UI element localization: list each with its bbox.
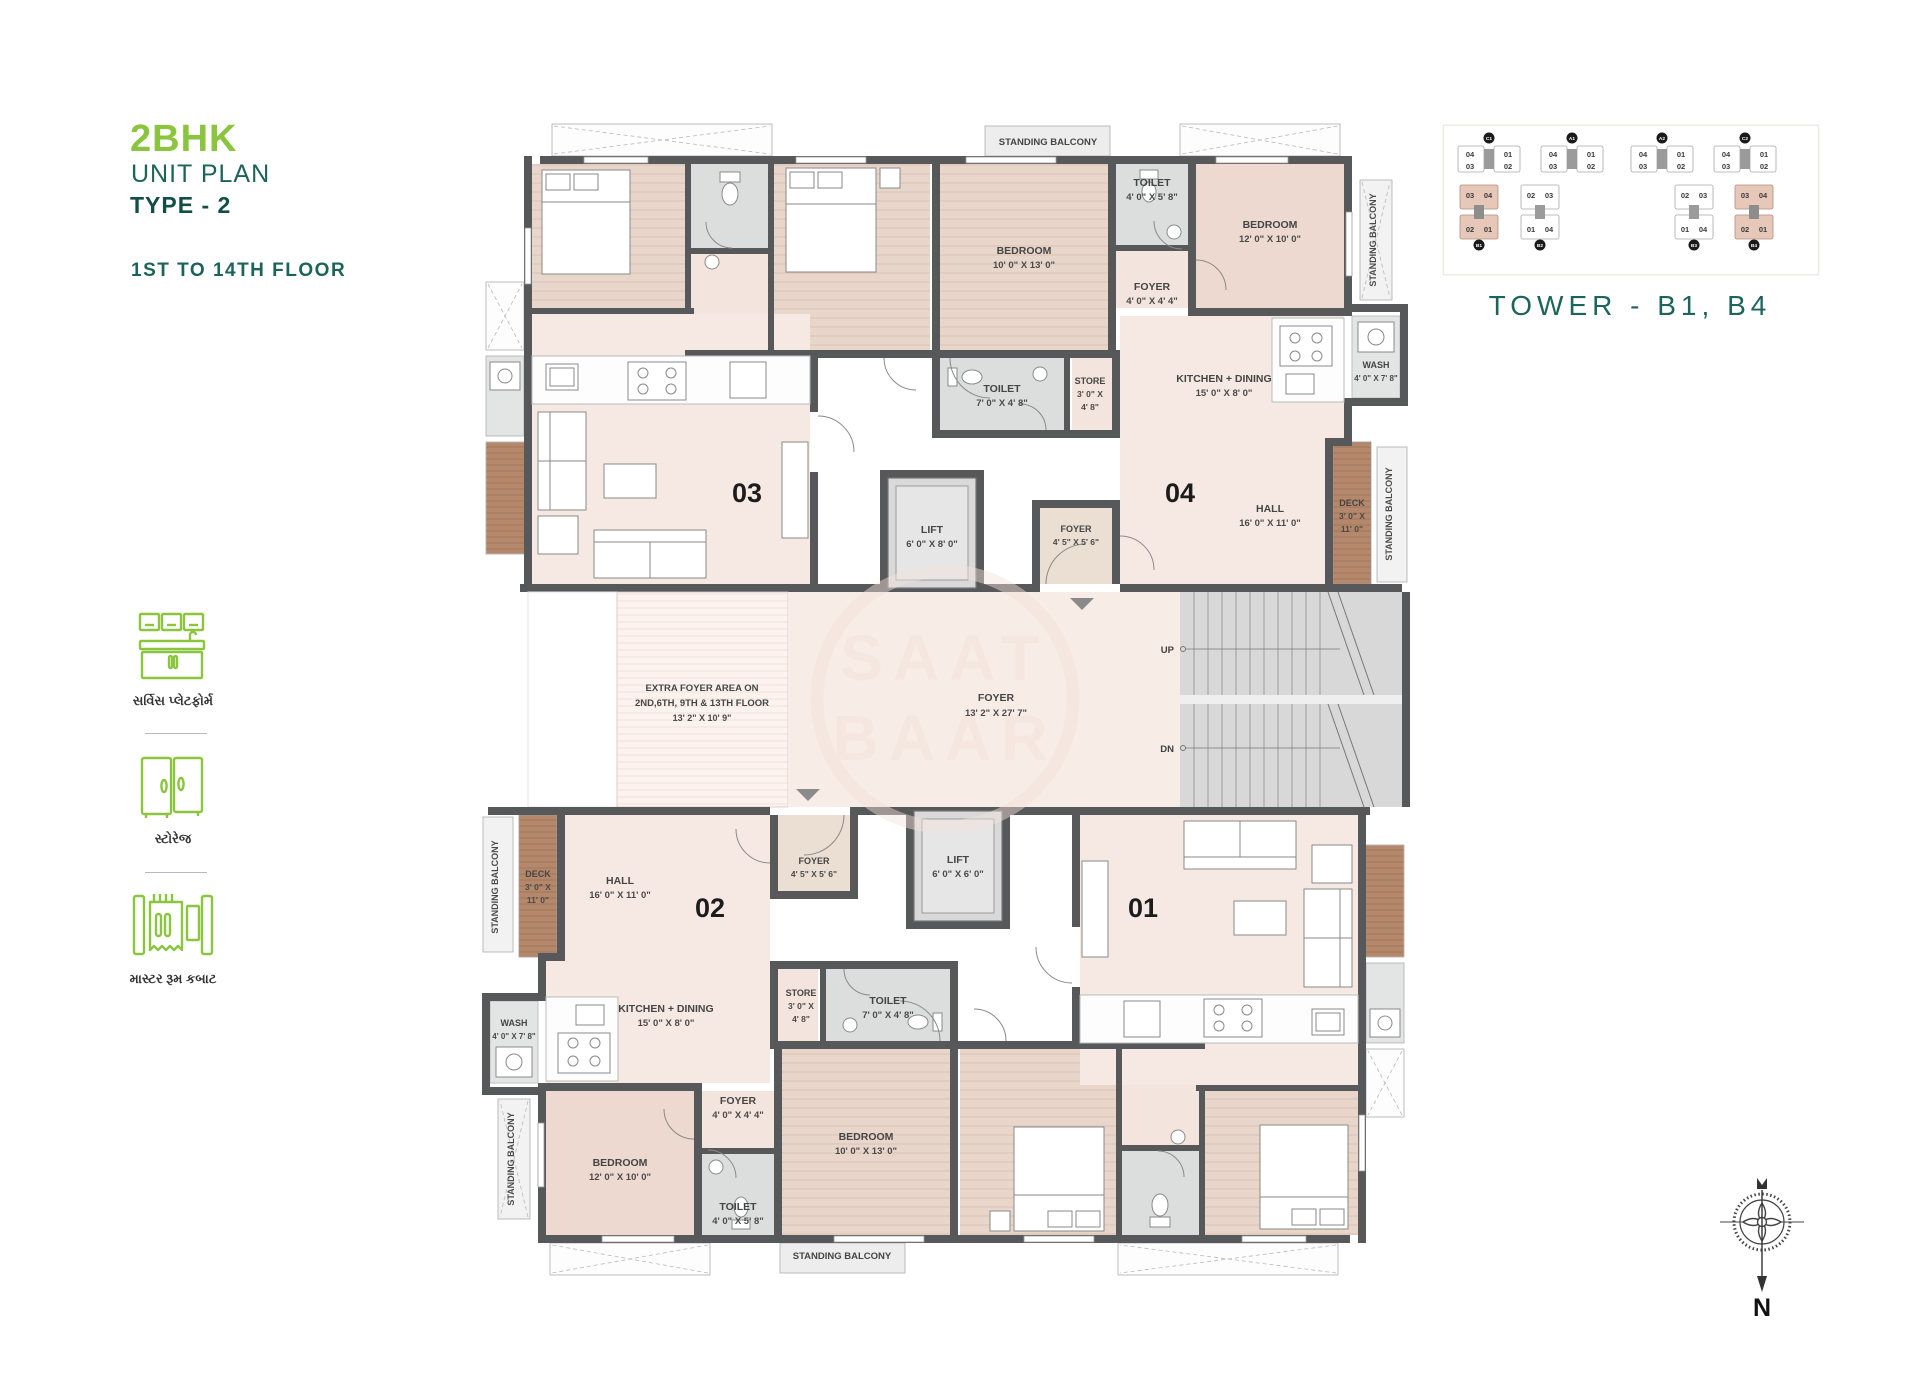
- legend-divider: [145, 733, 207, 734]
- legend-item-master-cupboard: માસ્ટર રૂમ કબાટ: [98, 892, 248, 987]
- svg-text:02: 02: [1466, 225, 1474, 234]
- svg-text:SAAT: SAAT: [840, 622, 1049, 694]
- label-standing-balcony-right-top: STANDING BALCONY: [1368, 193, 1378, 286]
- svg-text:13' 2" X 27' 7": 13' 2" X 27' 7": [965, 708, 1027, 719]
- svg-text:BEDROOM: BEDROOM: [593, 1157, 648, 1169]
- key-plan-caption: TOWER - B1, B4: [1443, 290, 1817, 322]
- svg-text:C2: C2: [1742, 136, 1748, 142]
- svg-text:3' 0" X: 3' 0" X: [1339, 511, 1365, 521]
- title-unit-plan: UNIT PLAN: [131, 160, 270, 189]
- svg-text:6' 0" X 8' 0": 6' 0" X 8' 0": [906, 539, 958, 550]
- svg-text:04: 04: [1549, 150, 1558, 159]
- key-plan-tower-B2: 0203 0104 B2: [1520, 184, 1560, 252]
- svg-text:12' 0" X 10' 0": 12' 0" X 10' 0": [1239, 234, 1301, 245]
- svg-text:HALL: HALL: [1256, 503, 1285, 515]
- label-standing-balcony-bottom: STANDING BALCONY: [793, 1251, 892, 1262]
- storage-icon: [140, 756, 206, 820]
- label-up: UP: [1161, 645, 1175, 656]
- label-dn: DN: [1160, 744, 1174, 755]
- svg-text:4' 8": 4' 8": [1081, 402, 1099, 412]
- svg-text:B1: B1: [1476, 243, 1482, 249]
- svg-text:4' 0" X 5' 8": 4' 0" X 5' 8": [712, 1216, 764, 1227]
- svg-text:WASH: WASH: [1363, 360, 1390, 370]
- svg-text:FOYER: FOYER: [1060, 524, 1092, 534]
- svg-text:10' 0" X 13' 0": 10' 0" X 13' 0": [993, 260, 1055, 271]
- title-bhk: 2BHK: [130, 118, 237, 161]
- svg-text:04: 04: [1484, 191, 1493, 200]
- svg-text:01: 01: [1504, 150, 1512, 159]
- svg-text:WASH: WASH: [501, 1018, 528, 1028]
- svg-text:TOILET: TOILET: [983, 383, 1021, 395]
- svg-text:EXTRA FOYER AREA ON: EXTRA FOYER AREA ON: [646, 683, 759, 694]
- key-plan-tower-B3: 0203 0104 B3: [1674, 184, 1714, 252]
- svg-text:B4: B4: [1751, 243, 1757, 249]
- master-cupboard-icon: [132, 892, 214, 960]
- svg-text:4' 0" X 4' 4": 4' 0" X 4' 4": [712, 1110, 764, 1121]
- svg-text:KITCHEN + DINING: KITCHEN + DINING: [1176, 373, 1271, 385]
- svg-text:13' 2" X 10' 9": 13' 2" X 10' 9": [673, 713, 732, 723]
- key-plan-tower-C1: 0401 0302 C1: [1457, 132, 1521, 176]
- svg-text:03: 03: [1466, 191, 1474, 200]
- svg-text:04: 04: [1639, 150, 1648, 159]
- svg-text:FOYER: FOYER: [978, 692, 1015, 704]
- unit-number-02: 02: [695, 893, 725, 923]
- svg-text:4' 5" X 5' 6": 4' 5" X 5' 6": [1053, 537, 1099, 547]
- svg-text:7' 0" X 4' 8": 7' 0" X 4' 8": [862, 1010, 914, 1021]
- svg-text:4' 8": 4' 8": [792, 1014, 810, 1024]
- svg-text:4' 0" X 5' 8": 4' 0" X 5' 8": [1126, 192, 1178, 203]
- key-plan-tower-A1: 0401 0302 A1: [1540, 132, 1604, 176]
- svg-text:7' 0" X 4' 8": 7' 0" X 4' 8": [976, 398, 1028, 409]
- svg-text:01: 01: [1527, 225, 1535, 234]
- svg-text:01: 01: [1681, 225, 1689, 234]
- svg-text:03: 03: [1545, 191, 1553, 200]
- svg-text:STORE: STORE: [1075, 376, 1106, 386]
- svg-text:6' 0" X 6' 0": 6' 0" X 6' 0": [932, 869, 984, 880]
- svg-text:B2: B2: [1537, 243, 1543, 249]
- title-plan-type: TYPE - 2: [130, 192, 231, 219]
- title-floor-range: 1ST TO 14TH FLOOR: [131, 260, 346, 282]
- svg-text:01: 01: [1484, 225, 1492, 234]
- svg-text:4' 5" X 5' 6": 4' 5" X 5' 6": [791, 869, 837, 879]
- svg-text:LIFT: LIFT: [921, 524, 944, 536]
- svg-text:03: 03: [1741, 191, 1749, 200]
- key-plan-box: 0401 0302 C1 0401 0302 A1 0401 0302 A2 0…: [1443, 125, 1819, 275]
- label-standing-balcony-left-top: STANDING BALCONY: [490, 840, 500, 933]
- svg-text:BEDROOM: BEDROOM: [1243, 219, 1298, 231]
- svg-text:DECK: DECK: [1339, 498, 1365, 508]
- key-plan-tower-C2: 0401 0302 C2: [1713, 132, 1777, 176]
- svg-text:TOILET: TOILET: [1133, 177, 1171, 189]
- svg-text:12' 0" X 10' 0": 12' 0" X 10' 0": [589, 1172, 651, 1183]
- svg-text:11' 0": 11' 0": [527, 895, 549, 905]
- svg-text:2ND,6TH, 9TH & 13TH FLOOR: 2ND,6TH, 9TH & 13TH FLOOR: [635, 698, 769, 709]
- svg-text:01: 01: [1677, 150, 1685, 159]
- service-platform-icon: [138, 612, 208, 682]
- svg-text:LIFT: LIFT: [947, 854, 970, 866]
- svg-text:TOILET: TOILET: [719, 1201, 757, 1213]
- label-standing-balcony-right-mid: STANDING BALCONY: [1384, 467, 1394, 560]
- svg-text:BEDROOM: BEDROOM: [997, 245, 1052, 257]
- svg-text:02: 02: [1741, 225, 1749, 234]
- svg-text:TOILET: TOILET: [869, 995, 907, 1007]
- legend-label-service-platform: સર્વિસ પ્લેટફોર્મ: [98, 693, 248, 709]
- svg-text:10' 0" X 13' 0": 10' 0" X 13' 0": [835, 1146, 897, 1157]
- staircase: [1180, 592, 1410, 807]
- svg-text:02: 02: [1681, 191, 1689, 200]
- svg-text:03: 03: [1466, 162, 1474, 171]
- svg-text:04: 04: [1466, 150, 1475, 159]
- legend-item-service-platform: સર્વિસ પ્લેટફોર્મ: [98, 612, 248, 709]
- floor-plan: SAAT BAAR STANDING BALCONY BEDROOM 10' 0…: [480, 112, 1410, 1287]
- svg-text:02: 02: [1504, 162, 1512, 171]
- legend-label-storage: સ્ટોરેજ: [98, 831, 248, 847]
- svg-text:3' 0" X: 3' 0" X: [525, 882, 551, 892]
- svg-text:15' 0" X 8' 0": 15' 0" X 8' 0": [638, 1018, 695, 1029]
- svg-text:02: 02: [1760, 162, 1768, 171]
- svg-text:STORE: STORE: [786, 988, 817, 998]
- label-standing-balcony-left-low: STANDING BALCONY: [506, 1112, 516, 1205]
- svg-text:02: 02: [1587, 162, 1595, 171]
- svg-text:02: 02: [1677, 162, 1685, 171]
- legend-item-storage: સ્ટોરેજ: [98, 756, 248, 847]
- svg-text:4' 0" X 4' 4": 4' 0" X 4' 4": [1126, 296, 1178, 307]
- svg-text:KITCHEN + DINING: KITCHEN + DINING: [618, 1003, 713, 1015]
- key-plan-tower-B1: 0304 0201 B1: [1459, 184, 1499, 252]
- svg-text:BEDROOM: BEDROOM: [839, 1131, 894, 1143]
- svg-text:03: 03: [1699, 191, 1707, 200]
- key-plan-tower-A2: 0401 0302 A2: [1630, 132, 1694, 176]
- svg-text:3' 0" X: 3' 0" X: [788, 1001, 814, 1011]
- svg-text:03: 03: [1722, 162, 1730, 171]
- svg-text:4' 0" X 7' 8": 4' 0" X 7' 8": [492, 1032, 536, 1041]
- svg-text:A2: A2: [1659, 136, 1665, 142]
- svg-text:04: 04: [1545, 225, 1554, 234]
- svg-text:03: 03: [1639, 162, 1647, 171]
- svg-text:DECK: DECK: [525, 869, 551, 879]
- svg-text:FOYER: FOYER: [1134, 281, 1171, 293]
- svg-text:B3: B3: [1691, 243, 1697, 249]
- svg-text:04: 04: [1759, 191, 1768, 200]
- unit-number-04: 04: [1165, 478, 1195, 508]
- compass-north-label: N: [1753, 1294, 1771, 1322]
- svg-text:16' 0" X 11' 0": 16' 0" X 11' 0": [1239, 518, 1301, 529]
- svg-text:4' 0" X 7' 8": 4' 0" X 7' 8": [1354, 374, 1398, 383]
- svg-text:FOYER: FOYER: [720, 1095, 757, 1107]
- svg-text:04: 04: [1699, 225, 1708, 234]
- key-plan-tower-B4: 0304 0201 B4: [1734, 184, 1774, 252]
- svg-text:FOYER: FOYER: [798, 856, 830, 866]
- compass-icon: N: [1712, 1172, 1812, 1322]
- svg-text:C1: C1: [1486, 136, 1492, 142]
- unit-number-01: 01: [1128, 893, 1158, 923]
- svg-text:3' 0" X: 3' 0" X: [1077, 389, 1103, 399]
- svg-text:04: 04: [1722, 150, 1731, 159]
- svg-text:01: 01: [1760, 150, 1768, 159]
- svg-text:01: 01: [1759, 225, 1767, 234]
- svg-text:HALL: HALL: [606, 875, 635, 887]
- page: 2BHK UNIT PLAN TYPE - 2 1ST TO 14TH FLOO…: [0, 0, 1920, 1375]
- svg-text:16' 0" X 11' 0": 16' 0" X 11' 0": [589, 890, 651, 901]
- svg-text:15' 0" X 8' 0": 15' 0" X 8' 0": [1196, 388, 1253, 399]
- svg-text:11' 0": 11' 0": [1341, 524, 1363, 534]
- label-standing-balcony-top: STANDING BALCONY: [999, 137, 1098, 148]
- svg-text:03: 03: [1549, 162, 1557, 171]
- svg-text:01: 01: [1587, 150, 1595, 159]
- legend-label-master-cupboard: માસ્ટર રૂમ કબાટ: [98, 971, 248, 987]
- legend-divider: [145, 872, 207, 873]
- unit-number-03: 03: [732, 478, 762, 508]
- svg-text:02: 02: [1527, 191, 1535, 200]
- svg-text:A1: A1: [1569, 136, 1575, 142]
